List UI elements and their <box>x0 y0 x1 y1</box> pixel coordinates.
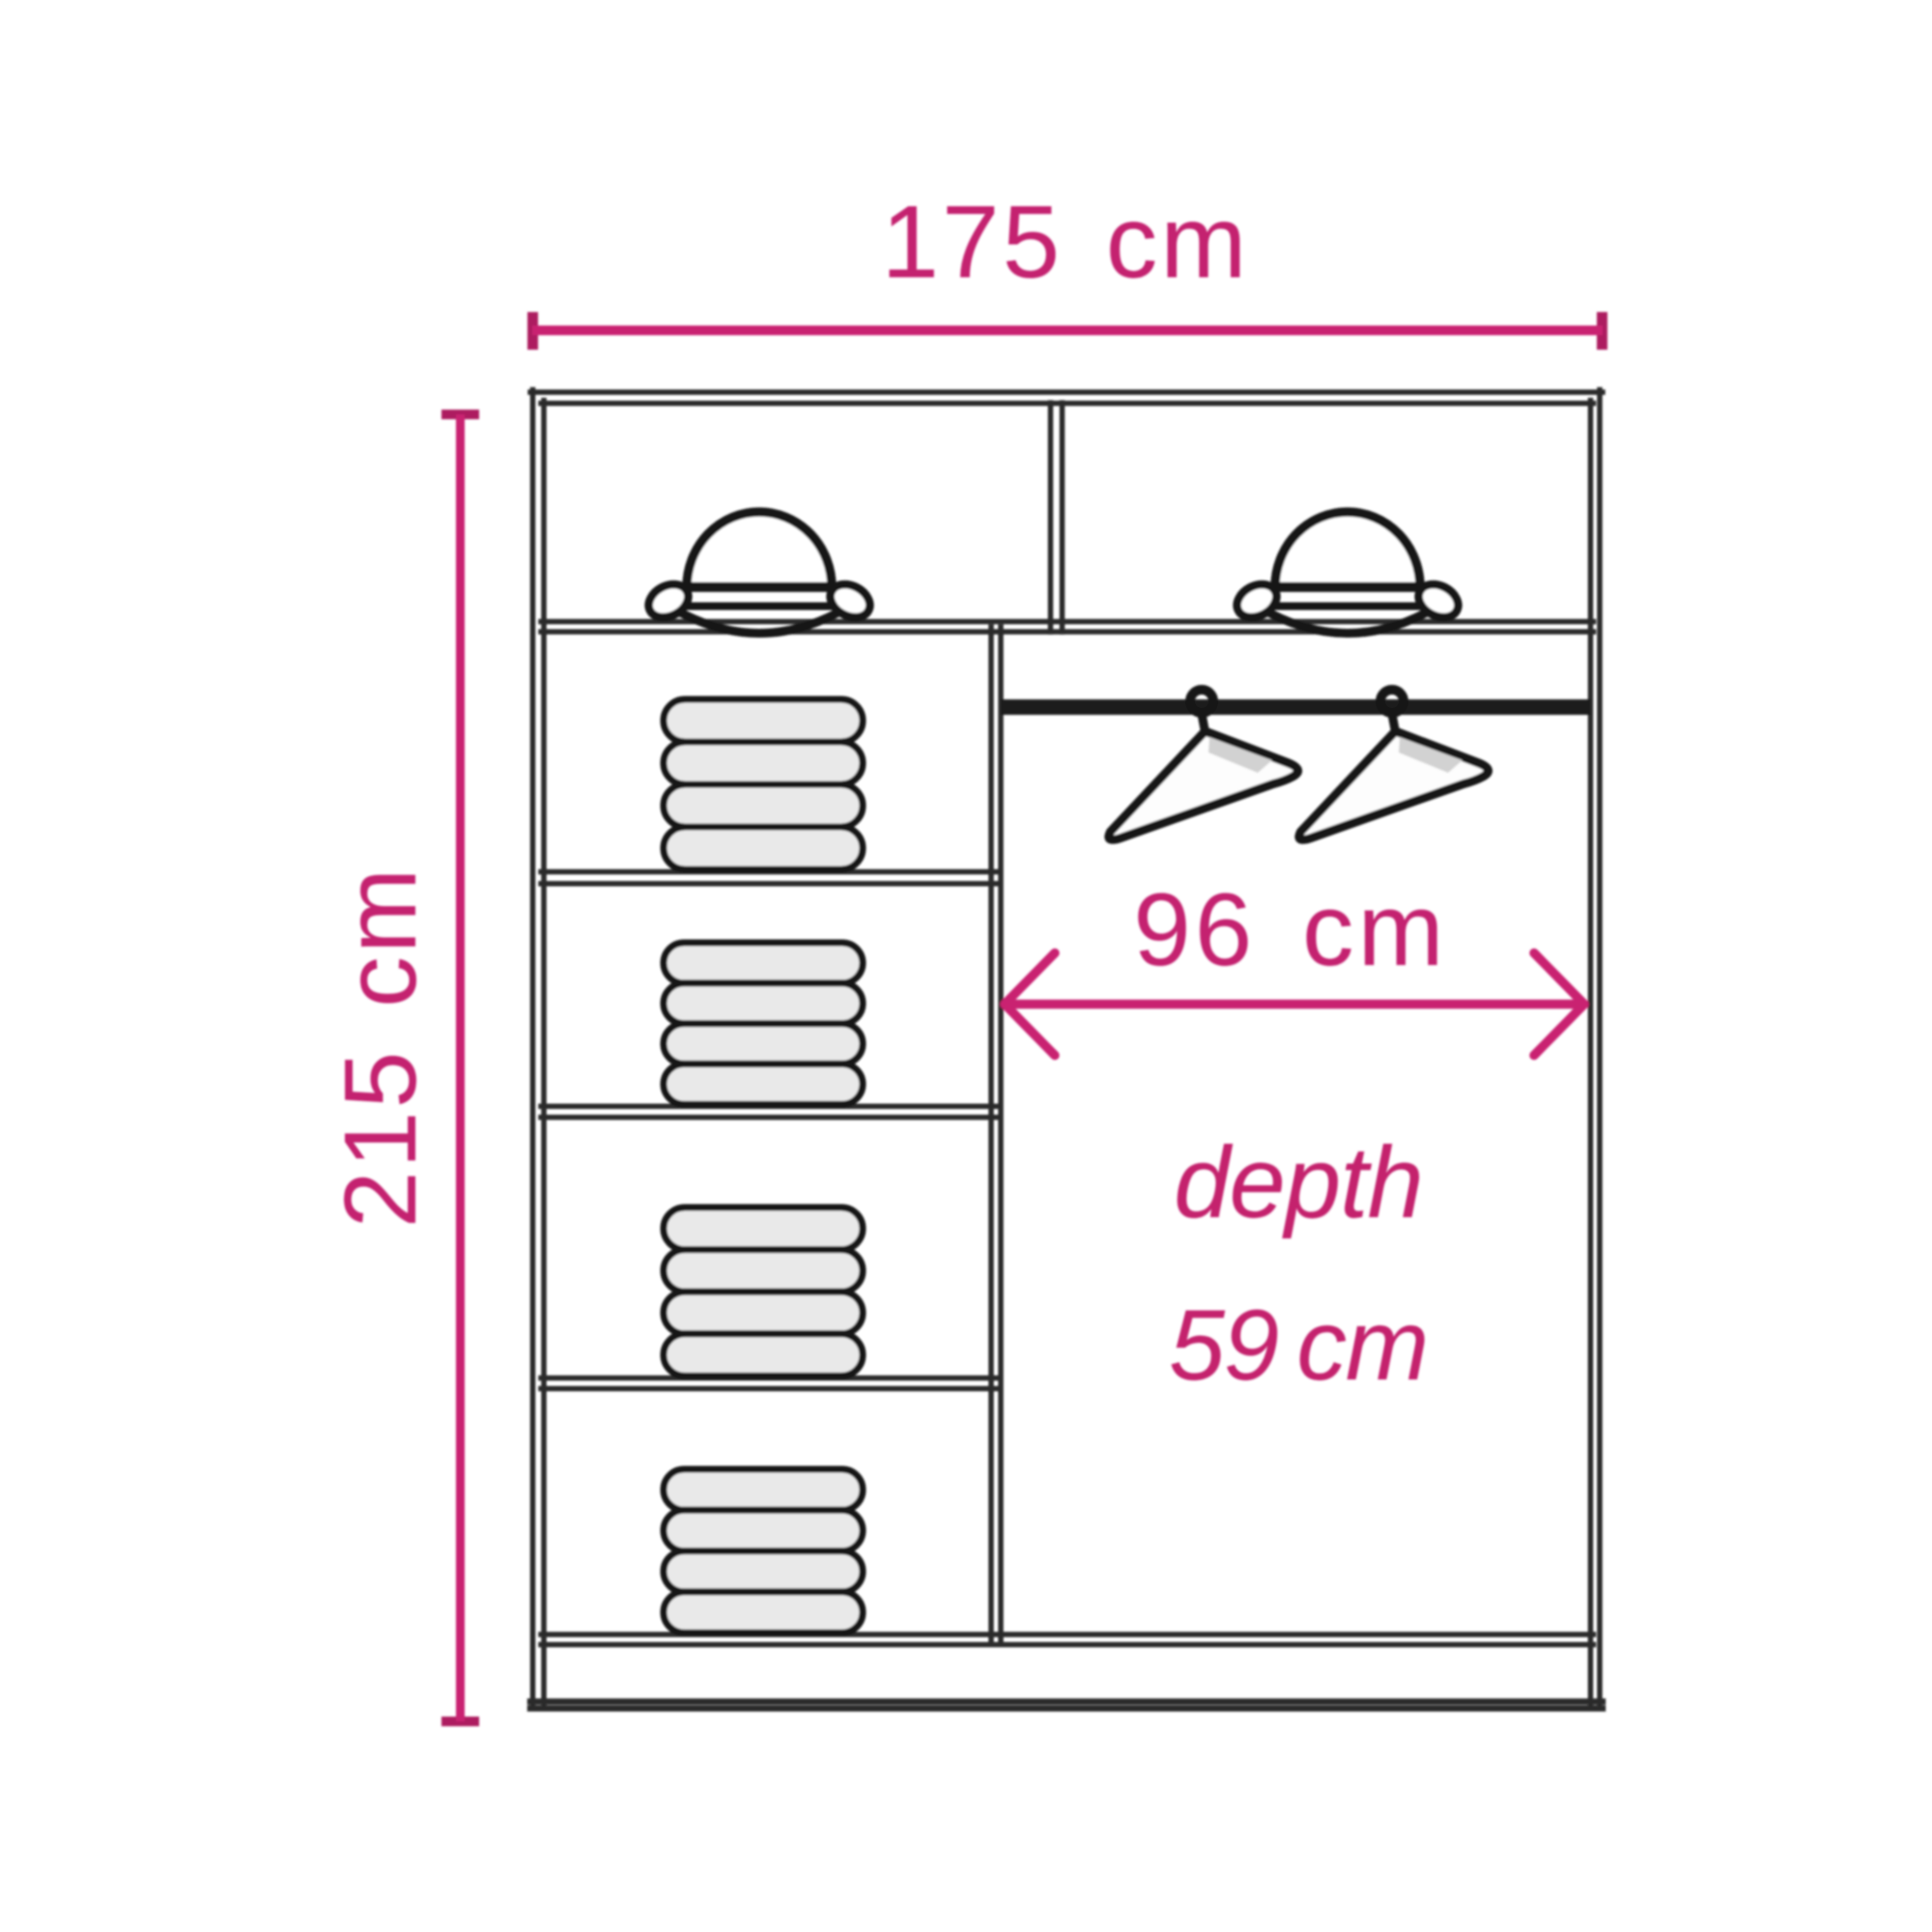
svg-text:depth: depth <box>1174 1126 1423 1239</box>
svg-text:59 cm: 59 cm <box>1169 1290 1428 1402</box>
svg-text:175 cm: 175 cm <box>882 184 1250 299</box>
svg-text:96 cm: 96 cm <box>1133 871 1447 987</box>
svg-text:215 cm: 215 cm <box>324 866 438 1229</box>
